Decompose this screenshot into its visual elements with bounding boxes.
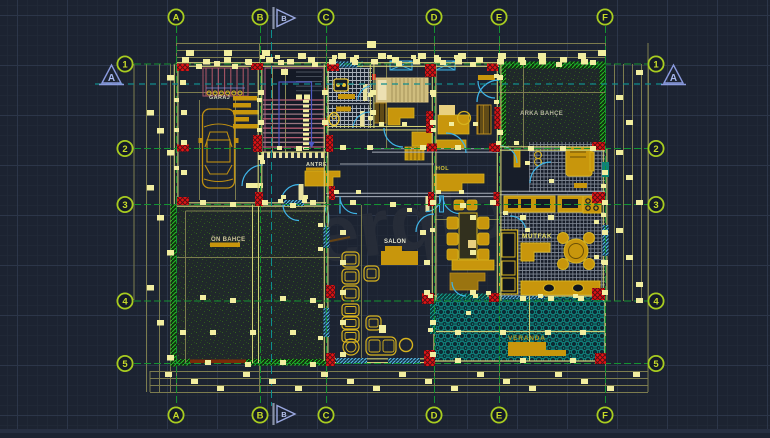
svg-text:ARKA BAHÇE: ARKA BAHÇE [520, 111, 563, 117]
svg-text:A: A [173, 12, 180, 23]
svg-text:B: B [257, 12, 264, 23]
svg-text:4: 4 [653, 296, 659, 307]
svg-text:A: A [173, 410, 180, 421]
svg-text:ÖN BAHÇE: ÖN BAHÇE [211, 236, 245, 243]
svg-text:C: C [323, 12, 330, 23]
svg-text:4: 4 [122, 296, 128, 307]
svg-text:A: A [670, 73, 677, 84]
svg-text:D: D [431, 12, 438, 23]
svg-text:5: 5 [653, 359, 659, 370]
svg-text:5: 5 [122, 359, 128, 370]
svg-text:2: 2 [122, 144, 127, 155]
svg-text:D: D [431, 410, 438, 421]
svg-text:VERANDA: VERANDA [508, 335, 546, 342]
svg-text:B: B [281, 14, 287, 23]
svg-text:E: E [496, 12, 502, 23]
svg-text:F: F [602, 410, 608, 421]
svg-text:HOL: HOL [436, 166, 449, 172]
svg-text:1: 1 [653, 59, 659, 70]
svg-text:3: 3 [653, 200, 658, 211]
svg-text:E: E [496, 410, 502, 421]
svg-text:SALON: SALON [384, 239, 406, 245]
svg-text:F: F [602, 12, 608, 23]
svg-text:3: 3 [122, 200, 127, 211]
svg-text:C: C [323, 410, 330, 421]
svg-text:A: A [108, 73, 115, 84]
svg-text:GARAJ: GARAJ [209, 95, 230, 101]
svg-text:MUTFAK: MUTFAK [522, 233, 552, 240]
svg-text:1: 1 [122, 59, 128, 70]
svg-text:2: 2 [653, 144, 658, 155]
svg-text:B: B [257, 410, 264, 421]
svg-text:B: B [281, 410, 287, 419]
